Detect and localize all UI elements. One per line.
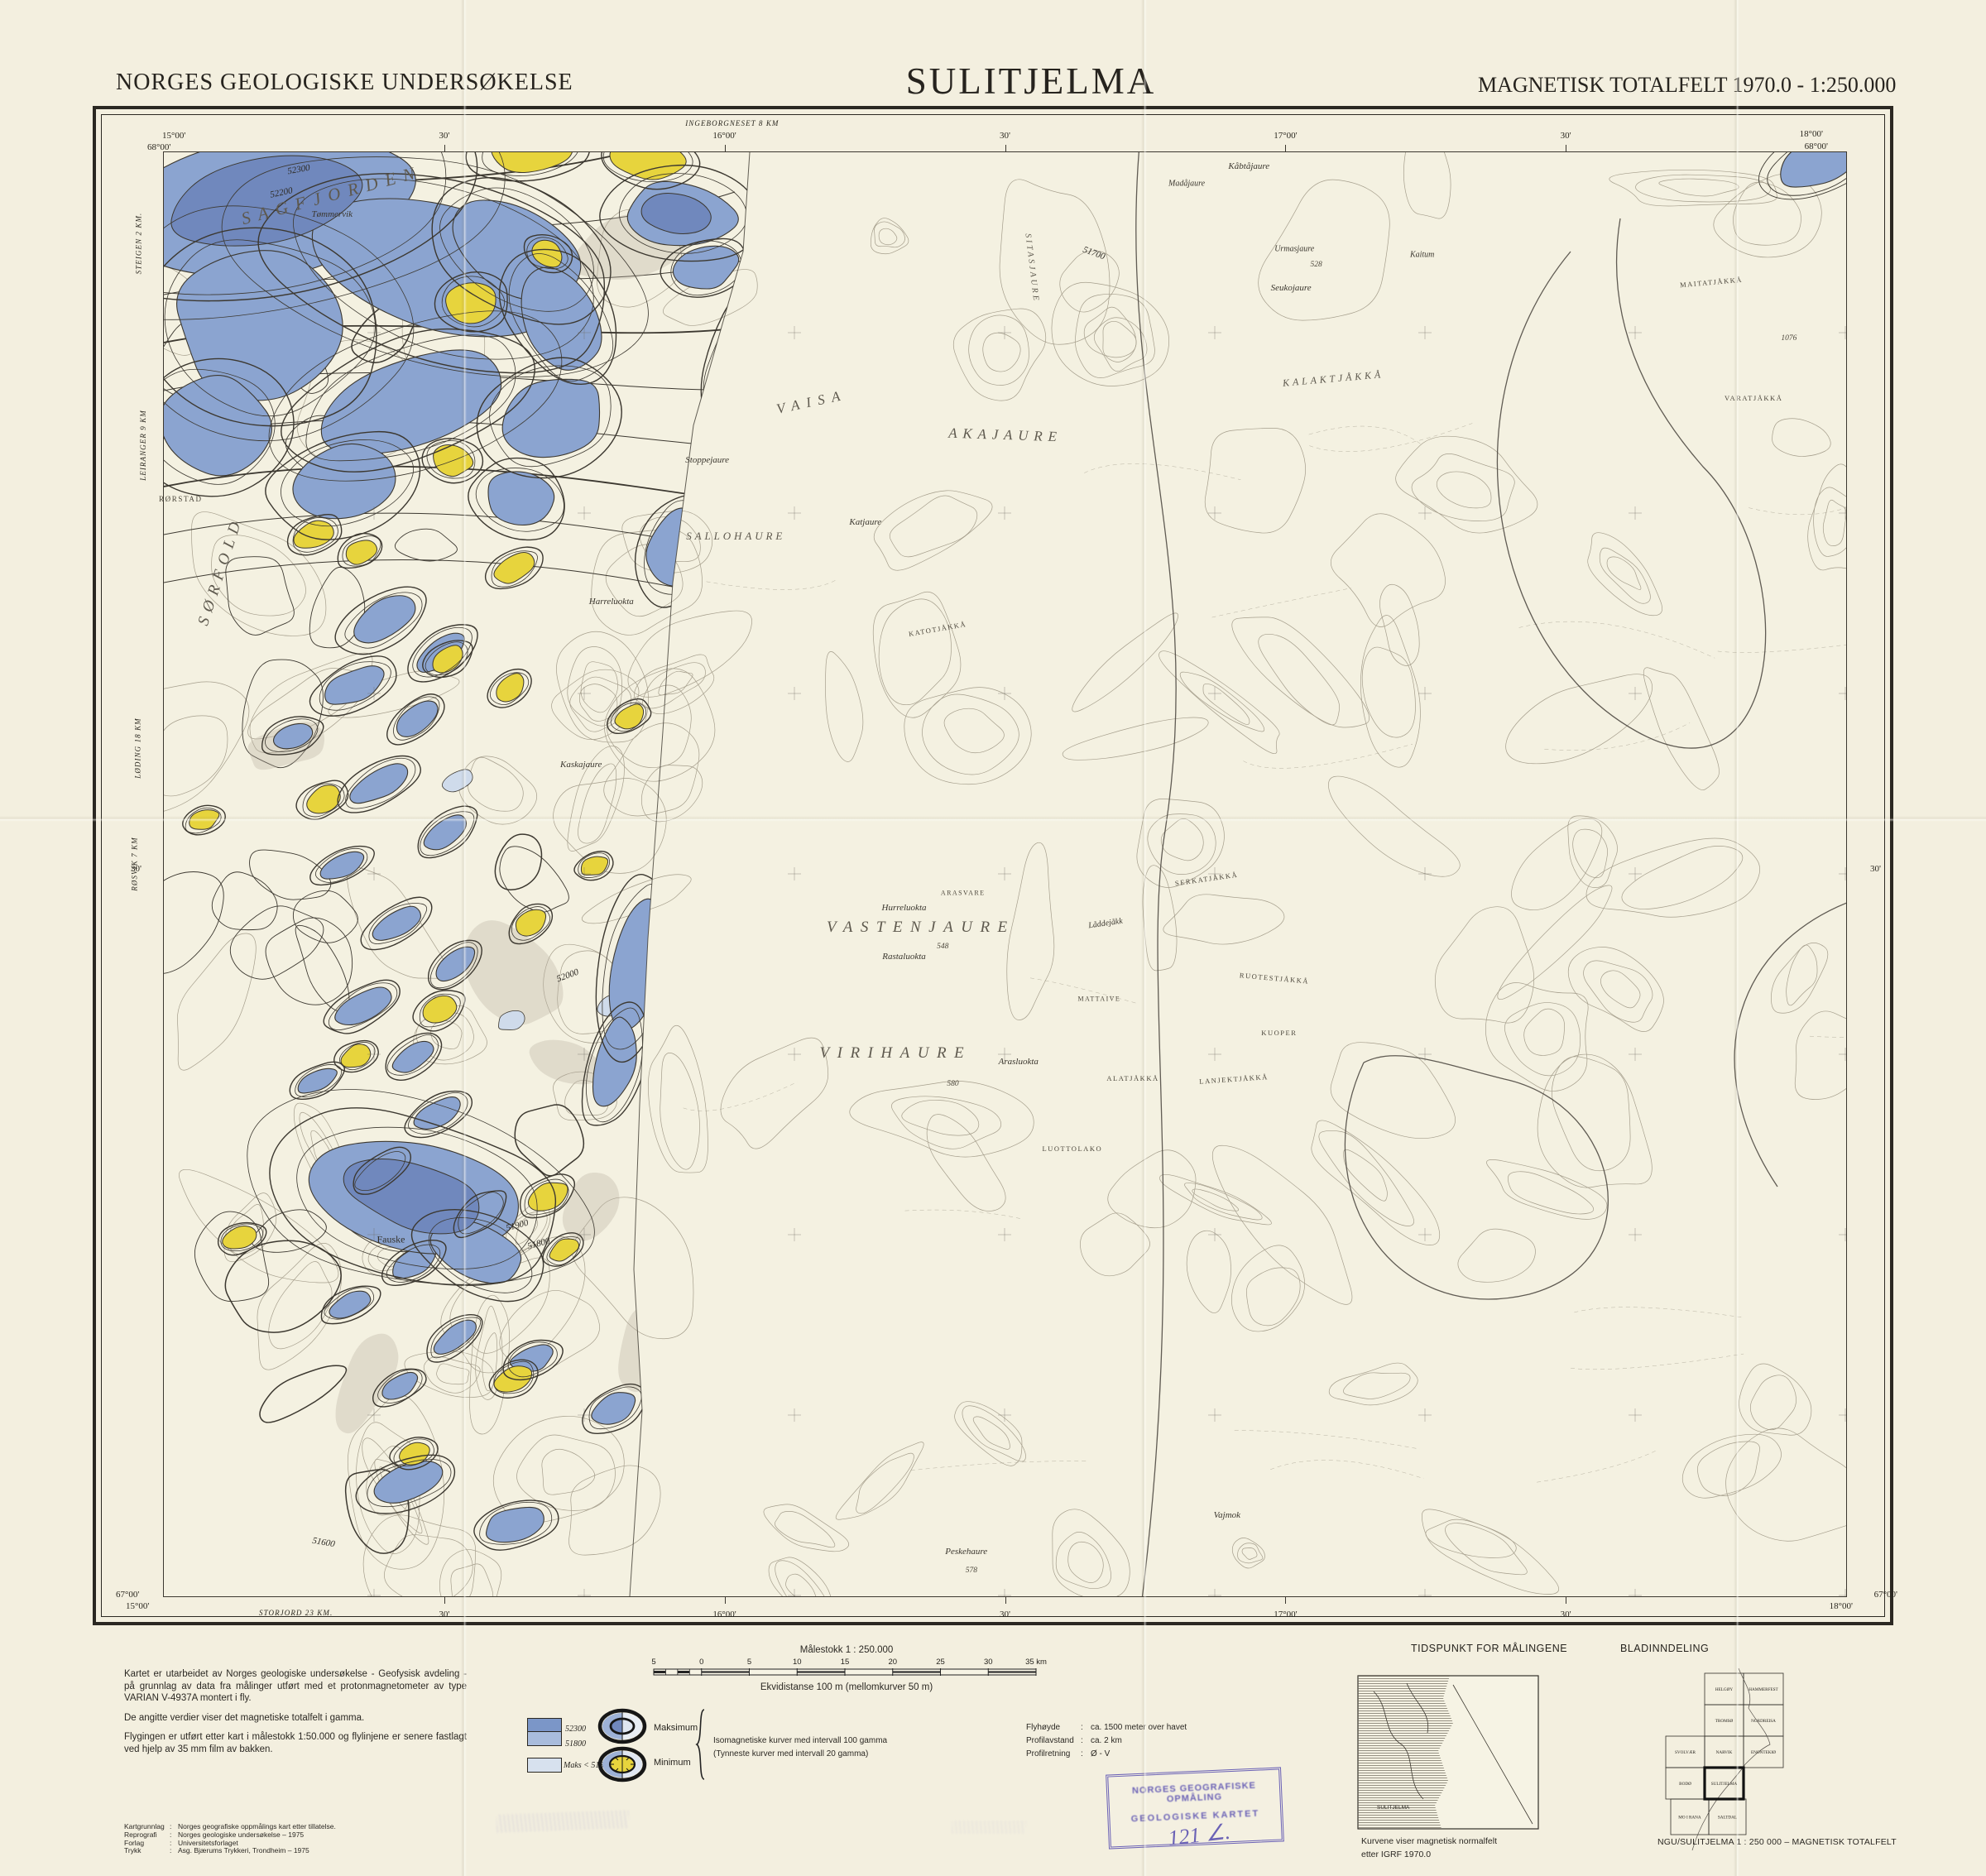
- legend-value-lower: 51800: [565, 1739, 586, 1749]
- corner-lon-bl: 15°00': [126, 1601, 149, 1611]
- margin-note-left: RØSVIK 7 KM: [131, 837, 139, 890]
- flight-info: Flyhøyde:ca. 1500 meter over havetProfil…: [1026, 1721, 1187, 1761]
- tidspunkt-caption-line1: Kurvene viser magnetisk normalfelt: [1361, 1835, 1497, 1848]
- bladinndeling-title: BLADINNDELING: [1620, 1643, 1709, 1654]
- corner-lat-tr: 68°00': [1805, 142, 1828, 151]
- scale-number: 25: [936, 1658, 945, 1667]
- about-text: Kartet er utarbeidet av Norges geologisk…: [124, 1668, 467, 1763]
- graticule-label-bottom: 16°00': [712, 1610, 736, 1619]
- svg-text:ENONTEKIØ: ENONTEKIØ: [1751, 1750, 1776, 1755]
- about-paragraph-3: Flygingen er utført etter kart i målesto…: [124, 1731, 467, 1755]
- graticule-tick: [1285, 1597, 1286, 1604]
- graticule-tick: [1566, 1597, 1566, 1604]
- graticule-label-top: 30': [1561, 131, 1571, 141]
- flight-info-row: Profilretning:Ø - V: [1026, 1748, 1187, 1761]
- scale-number: 15: [841, 1658, 850, 1667]
- tidspunkt-inset-label: SULITJELMA: [1377, 1805, 1410, 1811]
- svg-text:MO I RANA: MO I RANA: [1678, 1816, 1701, 1821]
- iso-curve-note-line2: (Tynneste kurver med intervall 20 gamma): [713, 1748, 887, 1761]
- mid-lat-right: 30': [1870, 864, 1881, 874]
- tidspunkt-caption-line2: etter IGRF 1970.0: [1361, 1848, 1497, 1861]
- maksimum-symbol: [600, 1710, 645, 1742]
- graticule-tick: [1005, 145, 1006, 151]
- minimum-label: Minimum: [654, 1758, 691, 1768]
- credit-row: Trykk:Asg. Bjærums Trykkeri, Trondheim –…: [124, 1847, 336, 1855]
- stamp-line2: GEOLOGISKE KARTET: [1130, 1809, 1259, 1825]
- scale-title: Målestokk 1 : 250.000: [800, 1645, 894, 1655]
- tidspunkt-caption: Kurvene viser magnetisk normalfelt etter…: [1361, 1835, 1497, 1861]
- equidistance-note: Ekvidistanse 100 m (mellomkurver 50 m): [760, 1682, 933, 1692]
- minimum-symbol: [600, 1749, 645, 1780]
- graticule-label-top: 30': [1000, 131, 1010, 141]
- legend-swatch-blue: [527, 1731, 562, 1746]
- scale-number: 5: [651, 1658, 655, 1667]
- graticule-label-top: 30': [439, 131, 449, 141]
- graticule-tick: [725, 1597, 726, 1604]
- graticule-tick: [1005, 1597, 1006, 1604]
- legend-oval-symbols: [594, 1706, 652, 1786]
- graticule-label-bottom: 17°00': [1274, 1610, 1297, 1619]
- svg-text:SALTDAL: SALTDAL: [1718, 1816, 1737, 1821]
- scale-number: 5: [747, 1658, 751, 1667]
- corner-lon-tr: 18°00': [1800, 129, 1823, 139]
- margin-note-left: LEIRANGER 9 KM: [139, 410, 147, 481]
- iso-curve-note-line1: Isomagnetiske kurver med intervall 100 g…: [713, 1734, 887, 1748]
- legend-bracket: [695, 1708, 707, 1781]
- scale-number: 20: [888, 1658, 897, 1667]
- scale-number: 35 km: [1025, 1658, 1047, 1667]
- about-paragraph-2: De angitte verdier viser det magnetiske …: [124, 1712, 467, 1725]
- about-paragraph-1: Kartet er utarbeidet av Norges geologisk…: [124, 1668, 467, 1705]
- svg-text:BODØ: BODØ: [1679, 1782, 1691, 1787]
- graticule-tick: [444, 145, 445, 151]
- svg-text:SVOLVÆR: SVOLVÆR: [1675, 1750, 1696, 1755]
- graticule-tick: [444, 1597, 445, 1604]
- faint-stamp-smudge: [952, 1821, 1026, 1834]
- graticule-label-bottom: 30': [1561, 1610, 1571, 1619]
- svg-text:SULITJELMA: SULITJELMA: [1711, 1782, 1738, 1787]
- margin-note-left: STEIGEN 2 KM.: [134, 212, 142, 274]
- graticule-label-bottom: 30': [1000, 1610, 1010, 1619]
- scale-bar: 505101520253035 km: [652, 1658, 1066, 1686]
- sheet-title: SULITJELMA: [906, 60, 1156, 103]
- graticule-label-top: 17°00': [1274, 131, 1297, 141]
- svg-text:HELGØY: HELGØY: [1715, 1687, 1734, 1692]
- stamp-number: 121 ∠.: [1167, 1820, 1231, 1851]
- agency-title: NORGES GEOLOGISKE UNDERSØKELSE: [116, 70, 573, 96]
- scale-number: 0: [699, 1658, 703, 1667]
- graticule-tick: [1285, 145, 1286, 151]
- scale-number: 10: [793, 1658, 802, 1667]
- legend-swatch-pale-blue: [527, 1758, 562, 1773]
- margin-note-top: INGEBORGNESET 8 KM: [685, 119, 779, 127]
- credits-block: Kartgrunnlag:Norges geografiske oppmålin…: [124, 1823, 336, 1855]
- tidspunkt-title: TIDSPUNKT FOR MÅLINGENE: [1411, 1643, 1567, 1654]
- svg-text:NARVIK: NARVIK: [1716, 1750, 1733, 1755]
- svg-text:TROMSØ: TROMSØ: [1715, 1719, 1734, 1724]
- flight-info-row: Flyhøyde:ca. 1500 meter over havet: [1026, 1721, 1187, 1734]
- maksimum-label: Maksimum: [654, 1723, 698, 1733]
- map-sheet-page: { "header": { "agency": "NORGES GEOLOGIS…: [0, 0, 1986, 1876]
- faint-handwriting-smudge: [496, 1810, 630, 1833]
- approval-stamp: NORGES GEOGRAFISKE OPMÅLING GEOLOGISKE K…: [1106, 1767, 1284, 1849]
- scale-number: 30: [984, 1658, 993, 1667]
- map-artwork: [164, 152, 1846, 1596]
- edition-title: MAGNETISK TOTALFELT 1970.0 - 1:250.000: [1478, 73, 1896, 98]
- corner-lon-tl: 15°00': [162, 131, 185, 141]
- legend-value-upper: 52300: [565, 1725, 586, 1734]
- ngu-sheet-caption: NGU/SULITJELMA 1 : 250 000 – MAGNETISK T…: [1657, 1837, 1897, 1847]
- flight-info-row: Profilavstand:ca. 2 km: [1026, 1734, 1187, 1748]
- corner-lat-tl: 68°00': [147, 142, 170, 152]
- svg-text:NORDREISA: NORDREISA: [1751, 1719, 1776, 1724]
- graticule-label-bottom: 30': [439, 1610, 449, 1619]
- tidspunkt-inset-map: SULITJELMA: [1357, 1675, 1539, 1830]
- corner-lat-bl: 67°00': [116, 1590, 139, 1600]
- iso-curve-note: Isomagnetiske kurver med intervall 100 g…: [713, 1734, 887, 1761]
- graticule-tick: [725, 145, 726, 151]
- graticule-label-top: 16°00': [712, 131, 736, 141]
- corner-lon-br: 18°00': [1830, 1601, 1853, 1611]
- svg-text:HAMMERFEST: HAMMERFEST: [1749, 1687, 1778, 1692]
- scale-bar-graphic: [652, 1668, 1039, 1678]
- corner-lat-br: 67°00': [1874, 1590, 1897, 1600]
- margin-note-bottom: STORJORD 23 KM.: [259, 1609, 333, 1617]
- graticule-tick: [1566, 145, 1566, 151]
- map-content: SAGFJORDENSØRFOLDVAISAAKAJAURESALLOHAURE…: [163, 151, 1847, 1597]
- margin-note-left: LØDING 18 KM: [134, 718, 142, 779]
